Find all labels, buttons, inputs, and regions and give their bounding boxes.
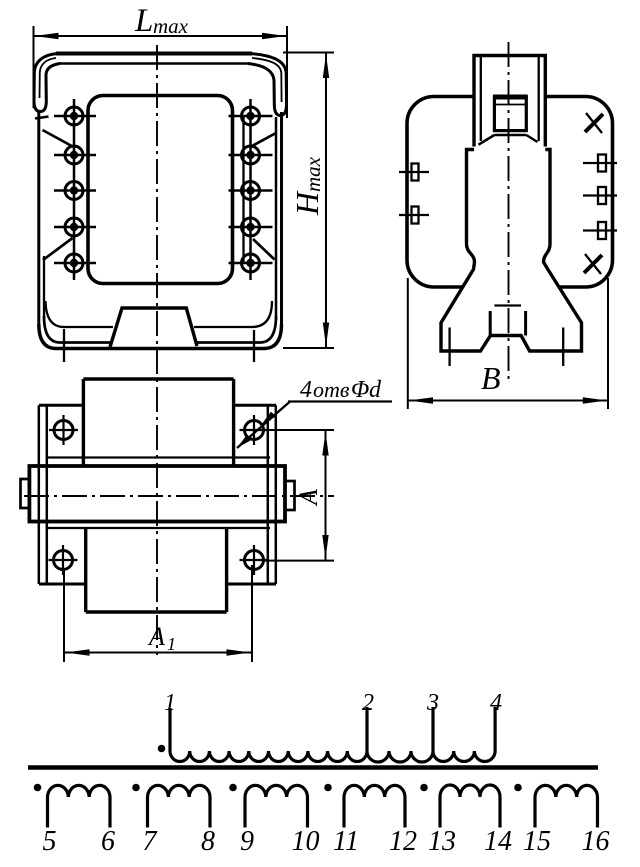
svg-text:9: 9 xyxy=(240,826,254,857)
svg-text:1: 1 xyxy=(167,634,176,654)
svg-text:6: 6 xyxy=(101,826,115,857)
svg-text:4: 4 xyxy=(300,377,312,403)
svg-text:A: A xyxy=(294,489,323,507)
svg-text:4: 4 xyxy=(490,690,502,716)
svg-text:2: 2 xyxy=(362,690,374,716)
svg-text:15: 15 xyxy=(523,826,551,857)
svg-text:d: d xyxy=(369,377,382,403)
svg-text:5: 5 xyxy=(43,826,57,857)
svg-text:max: max xyxy=(301,156,325,192)
svg-text:13: 13 xyxy=(428,826,456,857)
svg-text:отв: отв xyxy=(313,377,350,402)
svg-text:Φ: Φ xyxy=(351,377,369,403)
svg-text:B: B xyxy=(481,360,501,396)
svg-text:14: 14 xyxy=(484,826,512,857)
svg-text:16: 16 xyxy=(582,826,610,857)
svg-text:1: 1 xyxy=(164,690,176,716)
svg-text:A: A xyxy=(147,622,165,651)
svg-text:12: 12 xyxy=(389,826,417,857)
svg-text:H: H xyxy=(289,190,325,216)
svg-text:7: 7 xyxy=(143,826,158,857)
svg-text:8: 8 xyxy=(201,826,215,857)
svg-text:max: max xyxy=(153,14,189,38)
svg-text:3: 3 xyxy=(426,690,439,716)
svg-text:10: 10 xyxy=(292,826,320,857)
svg-text:L: L xyxy=(134,3,153,39)
svg-text:11: 11 xyxy=(333,826,359,857)
